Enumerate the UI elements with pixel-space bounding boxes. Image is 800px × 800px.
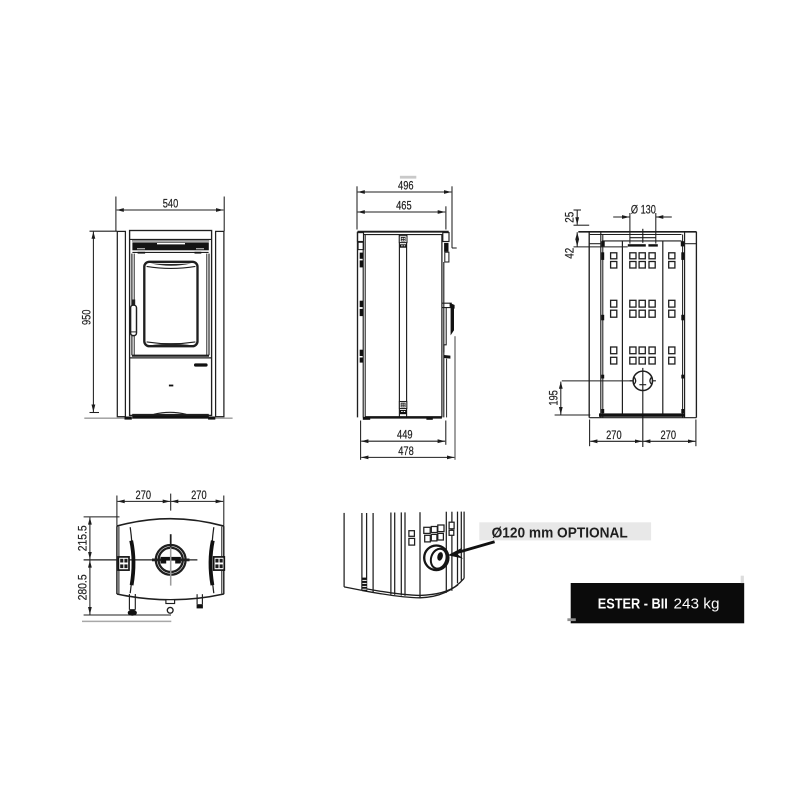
svg-text:280.5: 280.5 (76, 574, 90, 600)
svg-text:950: 950 (80, 309, 94, 325)
svg-text:270: 270 (191, 488, 207, 502)
svg-text:270: 270 (136, 488, 152, 502)
svg-text:Ø 130: Ø 130 (631, 202, 656, 216)
svg-text:243 kg: 243 kg (674, 596, 720, 613)
svg-text:449: 449 (397, 428, 413, 442)
svg-text:42: 42 (563, 248, 577, 259)
svg-text:195: 195 (546, 390, 560, 406)
svg-text:Ø120 mm OPTIONAL: Ø120 mm OPTIONAL (492, 526, 628, 542)
svg-text:270: 270 (661, 428, 677, 442)
svg-text:540: 540 (163, 197, 179, 211)
svg-text:ESTER - BII: ESTER - BII (598, 596, 668, 613)
svg-text:215.5: 215.5 (76, 525, 90, 551)
svg-text:496: 496 (398, 179, 414, 193)
svg-text:465: 465 (396, 199, 412, 213)
svg-text:478: 478 (398, 444, 414, 458)
svg-text:270: 270 (606, 428, 622, 442)
svg-text:25: 25 (563, 211, 577, 222)
